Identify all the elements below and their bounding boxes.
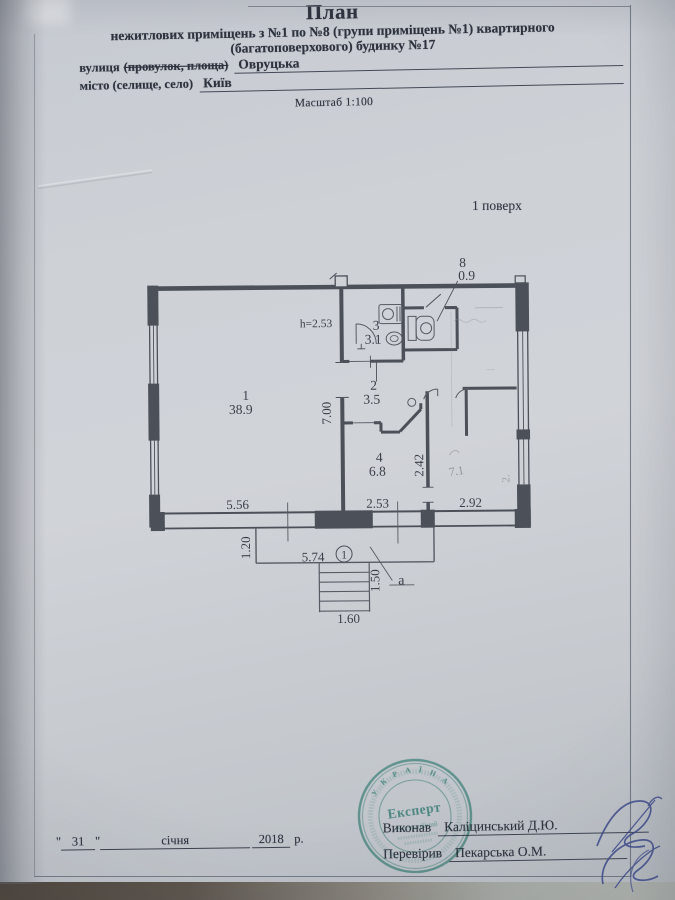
date-month: січня (100, 832, 250, 850)
executed-label: Виконав (383, 819, 432, 836)
checked-underline: Пекарська О.М. (449, 842, 627, 862)
paper-sheet (0, 0, 675, 884)
city-label: місто (селище, село) (79, 76, 193, 95)
date-day: 31 (61, 834, 95, 850)
date-row: " 31 " січня 2018 р. (56, 831, 326, 850)
scanned-floor-plan-page: План нежитлових приміщень з №1 по №8 (гр… (0, 0, 675, 900)
street-value: Овруцька (234, 54, 301, 72)
date-year: 2018 (252, 832, 290, 848)
photo-backdrop (0, 882, 675, 900)
checked-label: Перевірив (383, 845, 442, 862)
street-label: вулиця (79, 59, 120, 77)
street-label-struck: (провулок, площа) (124, 57, 229, 76)
executed-name: Каліцинський Д.Ю. (444, 817, 558, 834)
checked-name: Пекарська О.М. (455, 843, 546, 860)
document-header: План нежитлових приміщень з №1 по №8 (гр… (32, 0, 634, 115)
date-suffix: р. (294, 832, 304, 847)
checked-row: Перевірив Пекарська О.М. (383, 842, 649, 873)
city-value: Київ (199, 74, 234, 92)
executed-underline: Каліцинський Д.Ю. (438, 816, 649, 837)
floor-label: 1 поверх (472, 198, 522, 214)
signature-block: Виконав Каліцинський Д.Ю. Перевірив Пека… (383, 816, 650, 873)
